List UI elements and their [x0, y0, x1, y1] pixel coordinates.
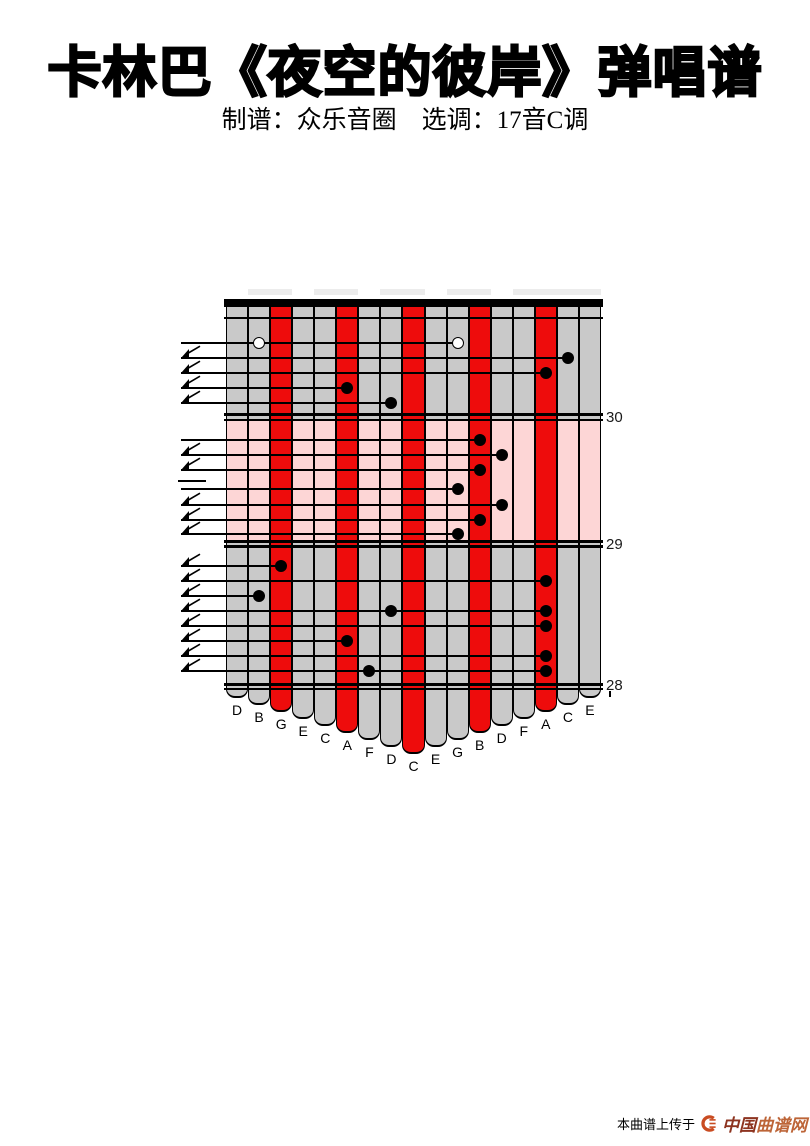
tine-label: D [226, 702, 248, 718]
sustain-dash-line [178, 480, 206, 482]
note-row-line [181, 357, 573, 359]
note-row-line [181, 625, 551, 627]
tine-column [248, 307, 270, 705]
tine-label: D [491, 730, 513, 746]
tine-top-stub [513, 289, 557, 295]
note-dot [540, 620, 552, 632]
tine-label: C [314, 730, 336, 746]
eighth-flag-icon [180, 521, 201, 539]
measure-boundary-line [224, 545, 603, 548]
note-dot [540, 665, 552, 677]
tine-pink-overlay [580, 421, 600, 540]
measure-number: 29 [606, 536, 623, 553]
note-row-line [181, 533, 463, 535]
note-dot [496, 499, 508, 511]
tine-top-stub [248, 289, 292, 295]
tine-label: E [579, 702, 601, 718]
note-row-line [181, 640, 352, 642]
measure-boundary-line [224, 683, 603, 686]
tine-pink-overlay [492, 421, 512, 540]
bridge-bar [224, 299, 603, 307]
note-dot [452, 528, 464, 540]
tine-column [491, 307, 513, 726]
note-dot [452, 483, 464, 495]
tine-label: A [535, 716, 557, 732]
note-row-line [181, 439, 485, 441]
tine-top-stub [314, 289, 358, 295]
hollow-note-dot [452, 337, 464, 349]
note-dot [474, 434, 486, 446]
note-row-line [181, 519, 485, 521]
tine-top-stub [557, 289, 601, 295]
note-row-line [181, 402, 396, 404]
grid-top-line [224, 317, 603, 319]
tine-label: F [513, 723, 535, 739]
tine-label: C [557, 709, 579, 725]
measure-boundary-line [224, 540, 603, 543]
tine-label: E [292, 723, 314, 739]
watermark: 本曲谱上传于 中国曲谱网 [617, 1111, 807, 1136]
note-dot [474, 464, 486, 476]
tine-label: B [248, 709, 270, 725]
measure-boundary-line [224, 419, 603, 422]
measure-boundary-line [224, 688, 603, 691]
kalimba-tab-diagram: DBGECAFDCEGBDFACE302928 [0, 0, 810, 810]
note-row-line [181, 610, 551, 612]
tine-label: B [469, 737, 491, 753]
note-dot [253, 590, 265, 602]
note-dot [540, 650, 552, 662]
note-dot [540, 605, 552, 617]
tine-label: F [358, 744, 380, 760]
measure-number: 30 [606, 409, 623, 426]
note-row-line [181, 454, 507, 456]
tine-pink-overlay [558, 421, 578, 540]
hollow-note-dot [253, 337, 265, 349]
note-dot [540, 367, 552, 379]
tine-column [557, 307, 579, 705]
tine-label: A [336, 737, 358, 753]
eighth-flag-icon [180, 658, 201, 676]
note-row-line [181, 342, 463, 344]
tine-column [270, 307, 292, 712]
tine-label: E [425, 751, 447, 767]
tine-top-stub [380, 289, 424, 295]
tine-label: D [380, 751, 402, 767]
note-row-line [181, 372, 551, 374]
note-dot [474, 514, 486, 526]
tine-pink-overlay [514, 421, 534, 540]
note-dot [496, 449, 508, 461]
eighth-flag-icon [180, 390, 201, 408]
note-dot [540, 575, 552, 587]
site-logo-icon [699, 1114, 718, 1133]
tine-column [513, 307, 535, 719]
tine-label: G [270, 716, 292, 732]
note-row-line [181, 469, 485, 471]
note-row-line [181, 504, 507, 506]
note-dot [562, 352, 574, 364]
measure-boundary-line [224, 413, 603, 416]
tine-label: C [403, 758, 425, 774]
tine-column [314, 307, 336, 726]
note-row-line [181, 655, 551, 657]
eighth-flag-icon [180, 457, 201, 475]
watermark-site-part2: 曲谱网 [756, 1116, 807, 1135]
tine-column [292, 307, 314, 719]
tine-label: G [447, 744, 469, 760]
watermark-site-name: 中国曲谱网 [722, 1111, 807, 1136]
note-row-line [181, 580, 551, 582]
sheet-page: 卡林巴《夜空的彼岸》弹唱谱 制谱：众乐音圈 选调：17音C调 DBGECAFDC… [0, 0, 810, 1146]
note-row-line [181, 488, 463, 490]
watermark-site-part1: 中国 [722, 1116, 756, 1135]
watermark-prefix: 本曲谱上传于 [617, 1114, 695, 1133]
tine-column [579, 307, 601, 698]
tine-top-stub [447, 289, 491, 295]
tick-mark [609, 691, 611, 697]
note-row-line [181, 387, 352, 389]
